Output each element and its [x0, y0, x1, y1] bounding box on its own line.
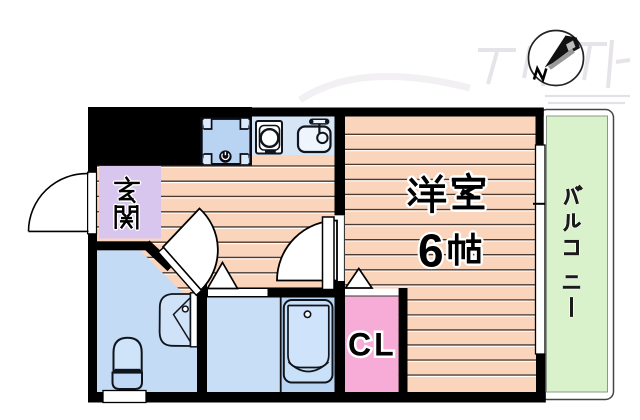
svg-text:6: 6 — [418, 225, 444, 277]
svg-text:CL: CL — [348, 327, 397, 363]
